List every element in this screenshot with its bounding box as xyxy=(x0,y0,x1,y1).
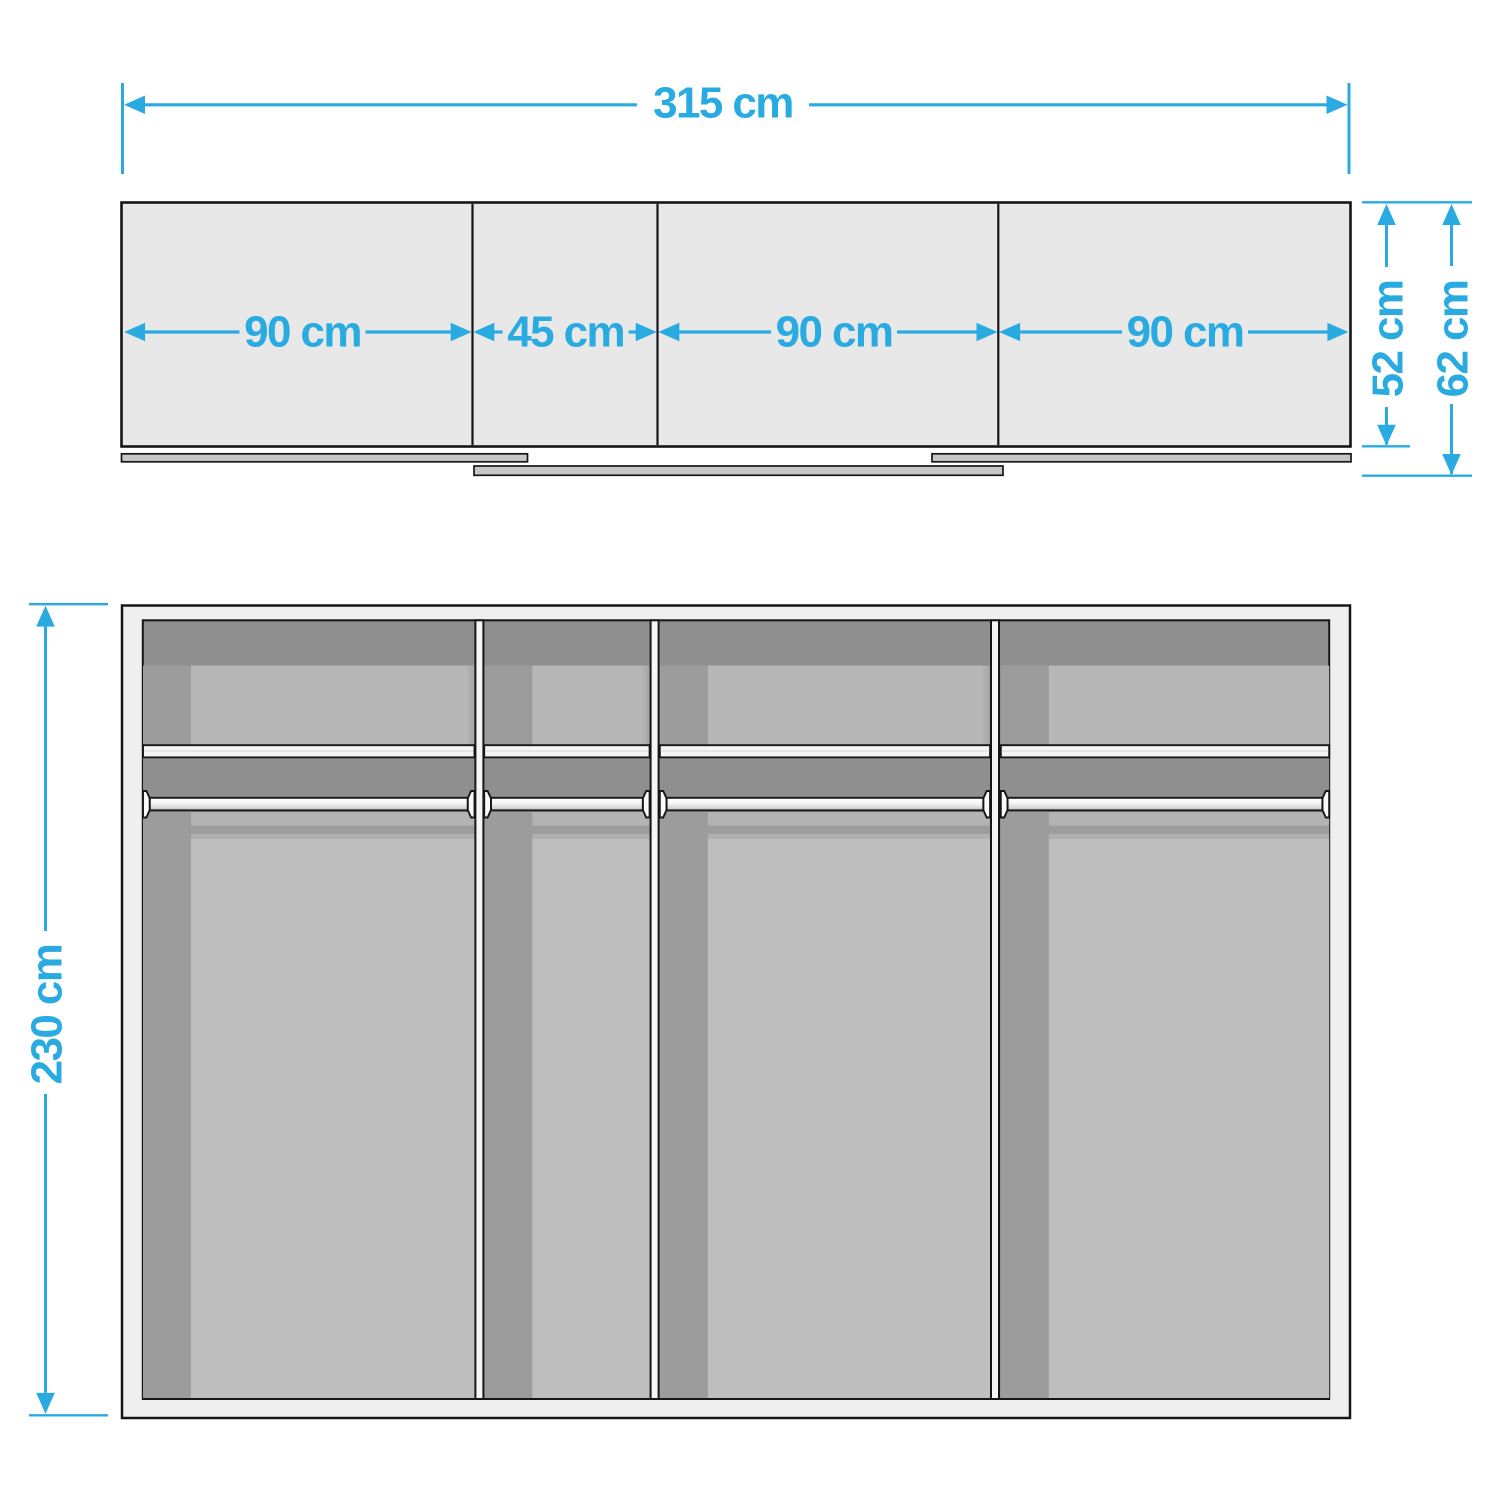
svg-text:52 cm: 52 cm xyxy=(1363,281,1412,398)
svg-text:62 cm: 62 cm xyxy=(1428,281,1477,398)
svg-text:90 cm: 90 cm xyxy=(244,307,361,356)
svg-text:315 cm: 315 cm xyxy=(653,79,793,128)
svg-text:230 cm: 230 cm xyxy=(22,945,71,1085)
svg-text:90 cm: 90 cm xyxy=(776,307,893,356)
svg-text:45 cm: 45 cm xyxy=(507,307,624,356)
svg-text:90 cm: 90 cm xyxy=(1127,307,1244,356)
